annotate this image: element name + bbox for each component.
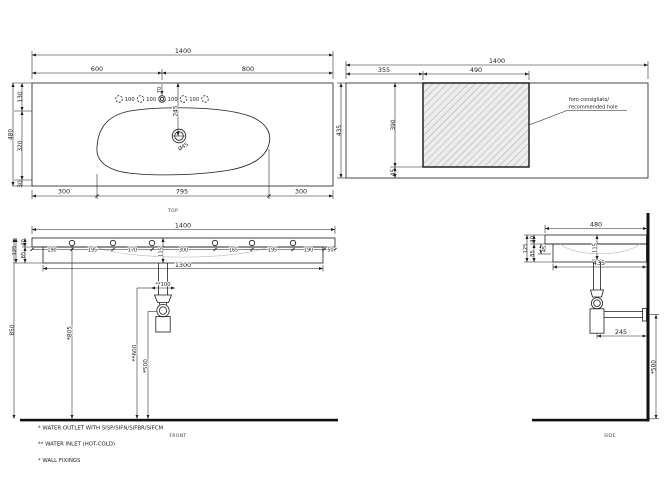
- dim-inlet-height: **600: [133, 344, 139, 361]
- dim-cutout-depth: 390: [391, 119, 397, 130]
- dim-fixing-spacing: 195: [88, 247, 97, 253]
- footnote-water-outlet: * WATER OUTLET WITH SISP/SIFN/SIFBR/SIFC…: [38, 426, 163, 432]
- dim-fixing-spacing: 195: [268, 247, 277, 253]
- dim-tap-right: 800: [242, 65, 254, 73]
- dim-tap-spacing: 100: [125, 97, 135, 103]
- dim-cutout-gap: 45: [391, 169, 397, 177]
- dim-apron-height: 85: [530, 250, 536, 257]
- dim-outlet-height: *500: [144, 359, 150, 373]
- dim-fixing-spacing: 190: [47, 247, 56, 253]
- dim-bowl-left: 300: [58, 188, 70, 196]
- dim-total-height: 850: [10, 324, 16, 335]
- dim-fixing-spacing: 165: [229, 247, 238, 253]
- dim-cutout-width: 490: [470, 66, 482, 74]
- view-caption-side: SIDE: [604, 433, 616, 439]
- footnote-water-inlet: ** WATER INLET (HOT-COLD): [38, 442, 115, 448]
- dim-depth-total: 480: [9, 129, 15, 140]
- dim-apron-width: 1300: [175, 261, 191, 269]
- floor-line: [532, 419, 650, 422]
- dim-bowl-depth: 115: [593, 243, 599, 253]
- dim-fixing-spacing: 300: [179, 247, 188, 253]
- dim-overall-width: 1400: [175, 222, 191, 230]
- dim-apron-height: 85: [21, 252, 27, 259]
- dim-fixing-spacing: 170: [128, 247, 137, 253]
- dim-rim-thickness: 40: [530, 236, 536, 243]
- washbasin-dimension-drawing: 1400 600 800 100 100 100 100 70 245 Ø45: [0, 0, 667, 500]
- dim-outlet-height: *500: [651, 360, 657, 374]
- view-caption-top: TOP: [167, 208, 178, 214]
- dim-bowl-width: 795: [176, 188, 188, 196]
- technical-drawing-page: 1400 600 800 100 100 100 100 70 245 Ø45: [0, 0, 667, 500]
- dim-depth-middle: 320: [18, 140, 24, 151]
- view-caption-front: FRONT: [170, 433, 187, 439]
- dim-depth-back: 130: [18, 91, 24, 102]
- note-line1: foro consigliato/: [569, 97, 609, 103]
- dim-trap-wall-offset: 245: [615, 328, 627, 336]
- dim-tap-left: 600: [91, 65, 103, 73]
- dim-overall-width: 1400: [175, 47, 191, 55]
- dim-tap-spacing: 100: [189, 97, 199, 103]
- dim-overall-depth: 480: [590, 221, 602, 229]
- wall-line: [647, 213, 650, 421]
- dim-overall-width: 1400: [489, 57, 505, 65]
- dim-front-height: 125: [523, 244, 529, 254]
- dim-overall-depth: 435: [337, 125, 343, 136]
- dim-tap-spacing: 100: [146, 97, 156, 103]
- dim-drain-offset: 245: [173, 105, 179, 116]
- dim-bowl-right: 300: [295, 188, 307, 196]
- dim-tap-offset: 70: [157, 87, 163, 94]
- dim-fixing-spacing: 50: [327, 247, 333, 253]
- dim-depth-front: 30: [18, 180, 24, 188]
- dim-fixing-height: *805: [68, 326, 74, 340]
- dim-tap-spacing: 100: [168, 97, 178, 103]
- dim-fixing-spacing: 190: [304, 247, 313, 253]
- dim-apron-depth: 435: [593, 259, 605, 267]
- footnote-wall-fixings: * WALL FIXINGS: [38, 458, 81, 464]
- recommended-hole-area: [423, 83, 529, 167]
- floor-line: [20, 419, 338, 422]
- dim-front-height: 125: [12, 246, 18, 256]
- dim-bowl-drop: 45: [542, 246, 548, 253]
- dim-inlet-spacing: **100: [155, 282, 170, 288]
- dim-cutout-offset: 355: [378, 66, 390, 74]
- note-line2: recommended hole: [569, 105, 618, 111]
- dim-rim-thickness: 40: [21, 239, 27, 246]
- dim-bowl-depth: 115: [159, 247, 165, 257]
